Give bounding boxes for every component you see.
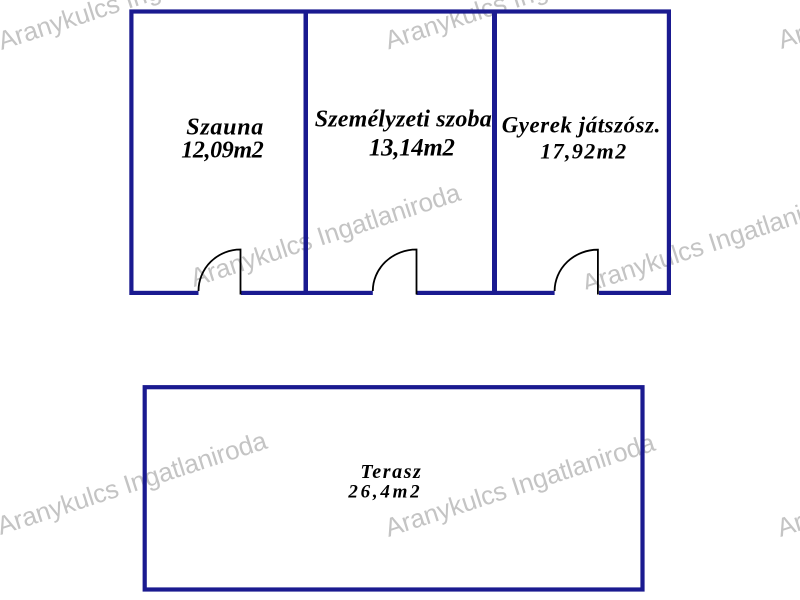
svg-text:Aranykulcs Ingatlaniroda: Aranykulcs Ingatlaniroda <box>578 183 800 299</box>
svg-text:Aranykulcs Ingatlaniroda: Aranykulcs Ingatlaniroda <box>187 177 465 293</box>
svg-text:Aranykulcs Ingatlaniroda: Aranykulcs Ingatlaniroda <box>381 0 659 55</box>
svg-text:13,14m2: 13,14m2 <box>369 135 455 162</box>
svg-text:Szauna: Szauna <box>186 114 263 140</box>
svg-text:Aranykulcs Ingatlaniroda: Aranykulcs Ingatlaniroda <box>381 427 659 543</box>
svg-text:Személyzeti szoba: Személyzeti szoba <box>315 106 492 132</box>
svg-text:Aranykulcs Ingatlaniroda: Aranykulcs Ingatlaniroda <box>0 0 272 56</box>
svg-text:12,09m2: 12,09m2 <box>181 138 264 164</box>
svg-text:Terasz: Terasz <box>360 461 421 483</box>
svg-text:Aranykulcs Ingatlaniroda: Aranykulcs Ingatlaniroda <box>773 427 800 543</box>
svg-text:Aranykulcs Ingatlaniroda: Aranykulcs Ingatlaniroda <box>0 425 271 541</box>
svg-text:26,4m2: 26,4m2 <box>347 481 420 502</box>
svg-text:Gyerek játszósz.: Gyerek játszósz. <box>502 113 661 138</box>
svg-text:Aranykulcs Ingatlaniroda: Aranykulcs Ingatlaniroda <box>774 0 800 55</box>
svg-text:17,92m2: 17,92m2 <box>540 139 626 164</box>
